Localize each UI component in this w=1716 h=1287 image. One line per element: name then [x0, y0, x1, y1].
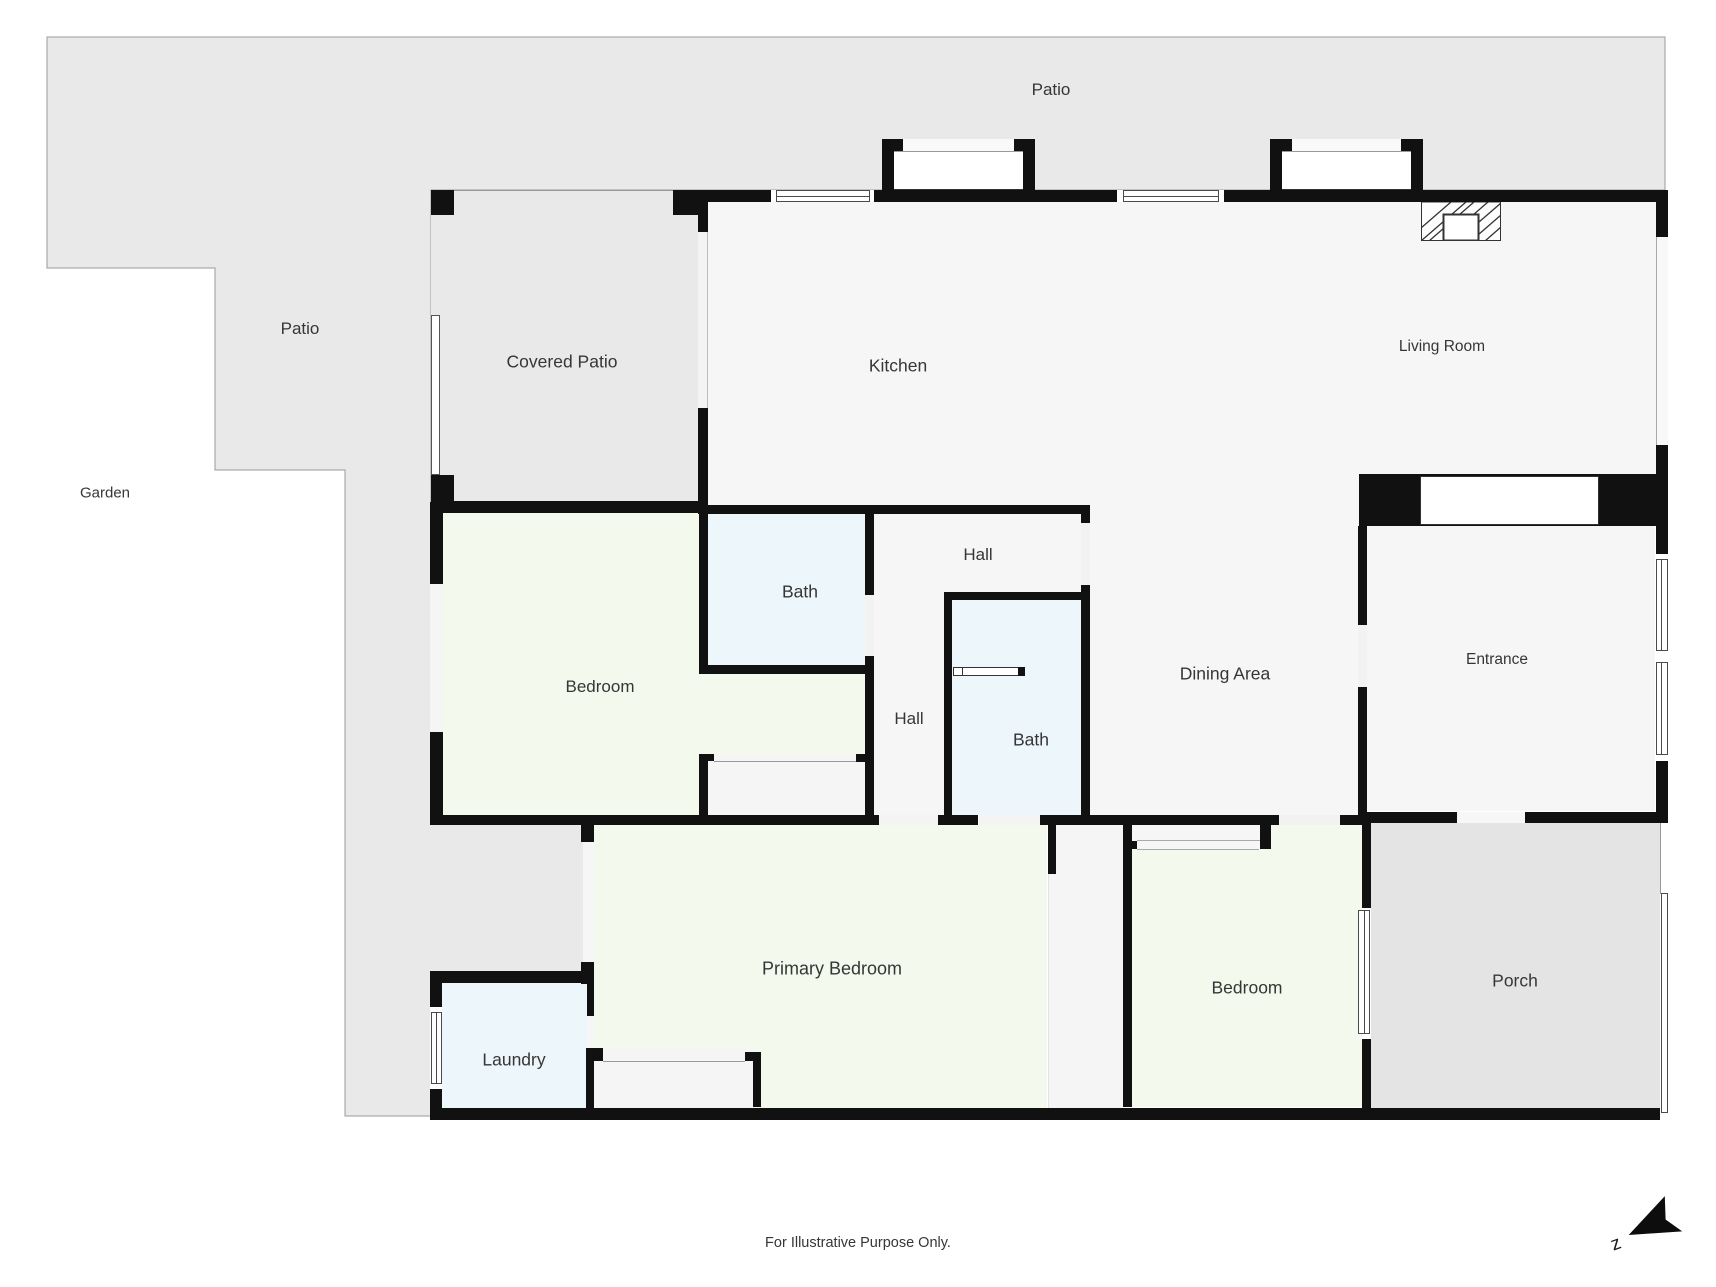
svg-text:z: z	[1608, 1232, 1624, 1255]
